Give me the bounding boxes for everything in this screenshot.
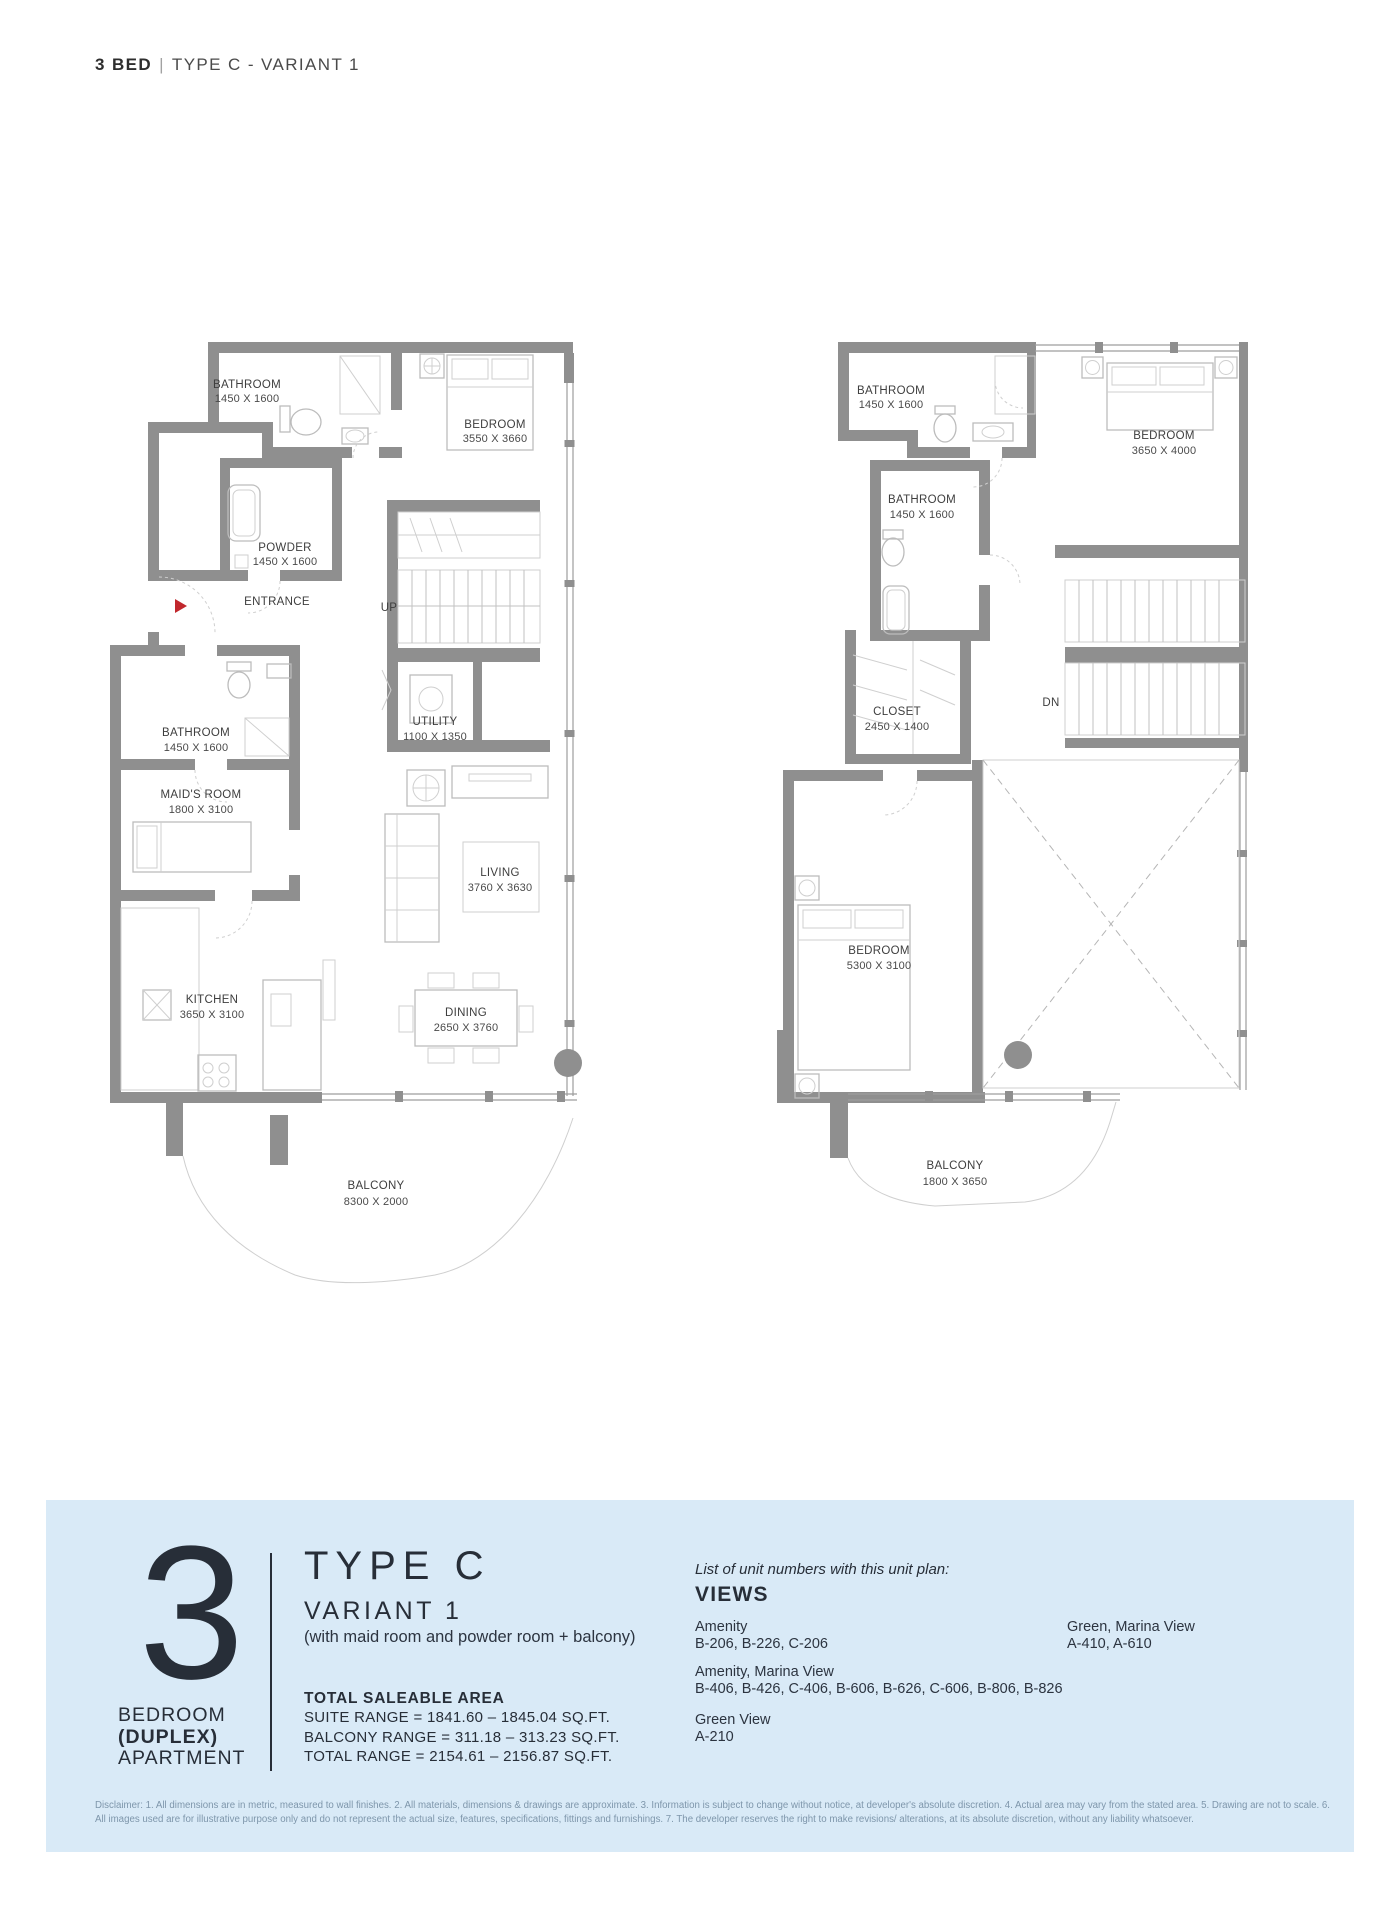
balcony-range: BALCONY RANGE = 311.18 – 313.23 SQ.FT. — [304, 1728, 620, 1748]
entrance-label: ENTRANCE — [244, 596, 310, 608]
room-dims-bathroom2: 1450 X 1600 — [164, 742, 229, 754]
walls-upper — [777, 342, 1248, 1158]
room-label-utility: UTILITY — [413, 716, 458, 728]
view-group-units: B-206, B-226, C-206 — [695, 1636, 828, 1653]
info-panel: 3 BEDROOM (DUPLEX) APARTMENT TYPE C VARI… — [46, 1500, 1354, 1852]
structural-column — [1004, 1041, 1032, 1069]
view-group-units: A-410, A-610 — [1067, 1636, 1195, 1653]
room-dims-dining: 2650 X 3760 — [434, 1022, 499, 1034]
room-dims-bedroom: 3550 X 3660 — [463, 433, 528, 445]
variant-title: VARIANT 1 — [304, 1597, 462, 1626]
room-dims-bedroom2: 5300 X 3100 — [847, 960, 912, 972]
page-title-divider: | — [152, 55, 172, 74]
furniture-upper — [795, 356, 1237, 1098]
disclaimer-text: Disclaimer: 1. All dimensions are in met… — [95, 1799, 1330, 1826]
page-title-unit: 3 BED — [95, 55, 152, 74]
room-dims-maids: 1800 X 3100 — [169, 804, 234, 816]
room-dims-bathroom1: 1450 X 1600 — [215, 393, 280, 405]
room-label-powder: POWDER — [258, 542, 312, 554]
unit-type-line-2: (DUPLEX) — [118, 1727, 245, 1749]
view-group-units: B-406, B-426, C-406, B-606, B-626, C-606… — [695, 1681, 1063, 1698]
area-title: TOTAL SALEABLE AREA — [304, 1690, 505, 1708]
view-group-label: Green View — [695, 1712, 771, 1729]
floor-plan-upper-level: BATHROOM 1450 X 1600 BEDROOM 3650 X 4000… — [775, 330, 1280, 1290]
views-intro: List of unit numbers with this unit plan… — [695, 1561, 949, 1578]
room-label-bedroom: BEDROOM — [464, 419, 526, 431]
bedroom-count: 3 — [104, 1518, 279, 1708]
page-title: 3 BED|TYPE C - VARIANT 1 — [95, 55, 360, 75]
view-group-label: Amenity, Marina View — [695, 1664, 1063, 1681]
room-dims-kitchen: 3650 X 3100 — [180, 1009, 245, 1021]
room-label-balcony: BALCONY — [347, 1180, 404, 1192]
view-group-green: Green View A-210 — [695, 1712, 771, 1746]
room-dims-bedroom1: 3650 X 4000 — [1132, 445, 1197, 457]
views-title: VIEWS — [695, 1583, 769, 1607]
room-label-bathroom1: BATHROOM — [213, 379, 281, 391]
room-label-dining: DINING — [445, 1007, 487, 1019]
room-label-bathroom1: BATHROOM — [857, 385, 925, 397]
variant-note: (with maid room and powder room + balcon… — [304, 1628, 636, 1647]
view-group-amenity-marina: Amenity, Marina View B-406, B-426, C-406… — [695, 1664, 1063, 1698]
view-group-green-marina: Green, Marina View A-410, A-610 — [1067, 1619, 1195, 1653]
room-label-maids: MAID'S ROOM — [161, 789, 242, 801]
brochure-page: 3 BED|TYPE C - VARIANT 1 — [0, 0, 1400, 1918]
stairs-up — [398, 570, 540, 643]
stair-dn-label: DN — [1042, 697, 1059, 709]
view-group-amenity: Amenity B-206, B-226, C-206 — [695, 1619, 828, 1653]
unit-type-label: BEDROOM (DUPLEX) APARTMENT — [118, 1705, 245, 1770]
room-dims-closet: 2450 X 1400 — [865, 721, 930, 733]
room-label-bedroom1: BEDROOM — [1133, 430, 1195, 442]
room-label-bathroom2: BATHROOM — [888, 494, 956, 506]
room-label-bedroom2: BEDROOM — [848, 945, 910, 957]
room-dims-living: 3760 X 3630 — [468, 882, 533, 894]
vertical-divider — [270, 1553, 272, 1771]
floor-plan-lower-level: BATHROOM 1450 X 1600 BEDROOM 3550 X 3660… — [95, 330, 585, 1290]
room-dims-bathroom2: 1450 X 1600 — [890, 509, 955, 521]
room-label-living: LIVING — [480, 867, 520, 879]
room-label-balcony: BALCONY — [926, 1160, 983, 1172]
view-group-label: Green, Marina View — [1067, 1619, 1195, 1636]
structural-column — [554, 1049, 582, 1077]
balcony-outline-upper — [848, 1102, 1116, 1206]
room-dims-balcony: 8300 X 2000 — [344, 1196, 409, 1208]
room-label-bathroom2: BATHROOM — [162, 727, 230, 739]
unit-type-line-1: BEDROOM — [118, 1705, 245, 1727]
room-dims-utility: 1100 X 1350 — [403, 731, 467, 743]
suite-range: SUITE RANGE = 1841.60 – 1845.04 SQ.FT. — [304, 1708, 620, 1728]
room-dims-bathroom1: 1450 X 1600 — [859, 399, 924, 411]
type-title: TYPE C — [304, 1544, 490, 1589]
room-label-closet: CLOSET — [873, 706, 921, 718]
view-group-units: A-210 — [695, 1729, 771, 1746]
room-dims-powder: 1450 X 1600 — [253, 556, 318, 568]
room-label-kitchen: KITCHEN — [186, 994, 239, 1006]
stair-up-label: UP — [381, 602, 398, 614]
unit-type-line-3: APARTMENT — [118, 1748, 245, 1770]
total-range: TOTAL RANGE = 2154.61 – 2156.87 SQ.FT. — [304, 1747, 620, 1767]
entrance-arrow-icon — [175, 599, 187, 613]
view-group-label: Amenity — [695, 1619, 828, 1636]
page-title-type: TYPE C - VARIANT 1 — [172, 55, 360, 74]
area-lines: SUITE RANGE = 1841.60 – 1845.04 SQ.FT. B… — [304, 1708, 620, 1767]
void-area — [983, 760, 1239, 1088]
room-dims-balcony: 1800 X 3650 — [923, 1176, 988, 1188]
